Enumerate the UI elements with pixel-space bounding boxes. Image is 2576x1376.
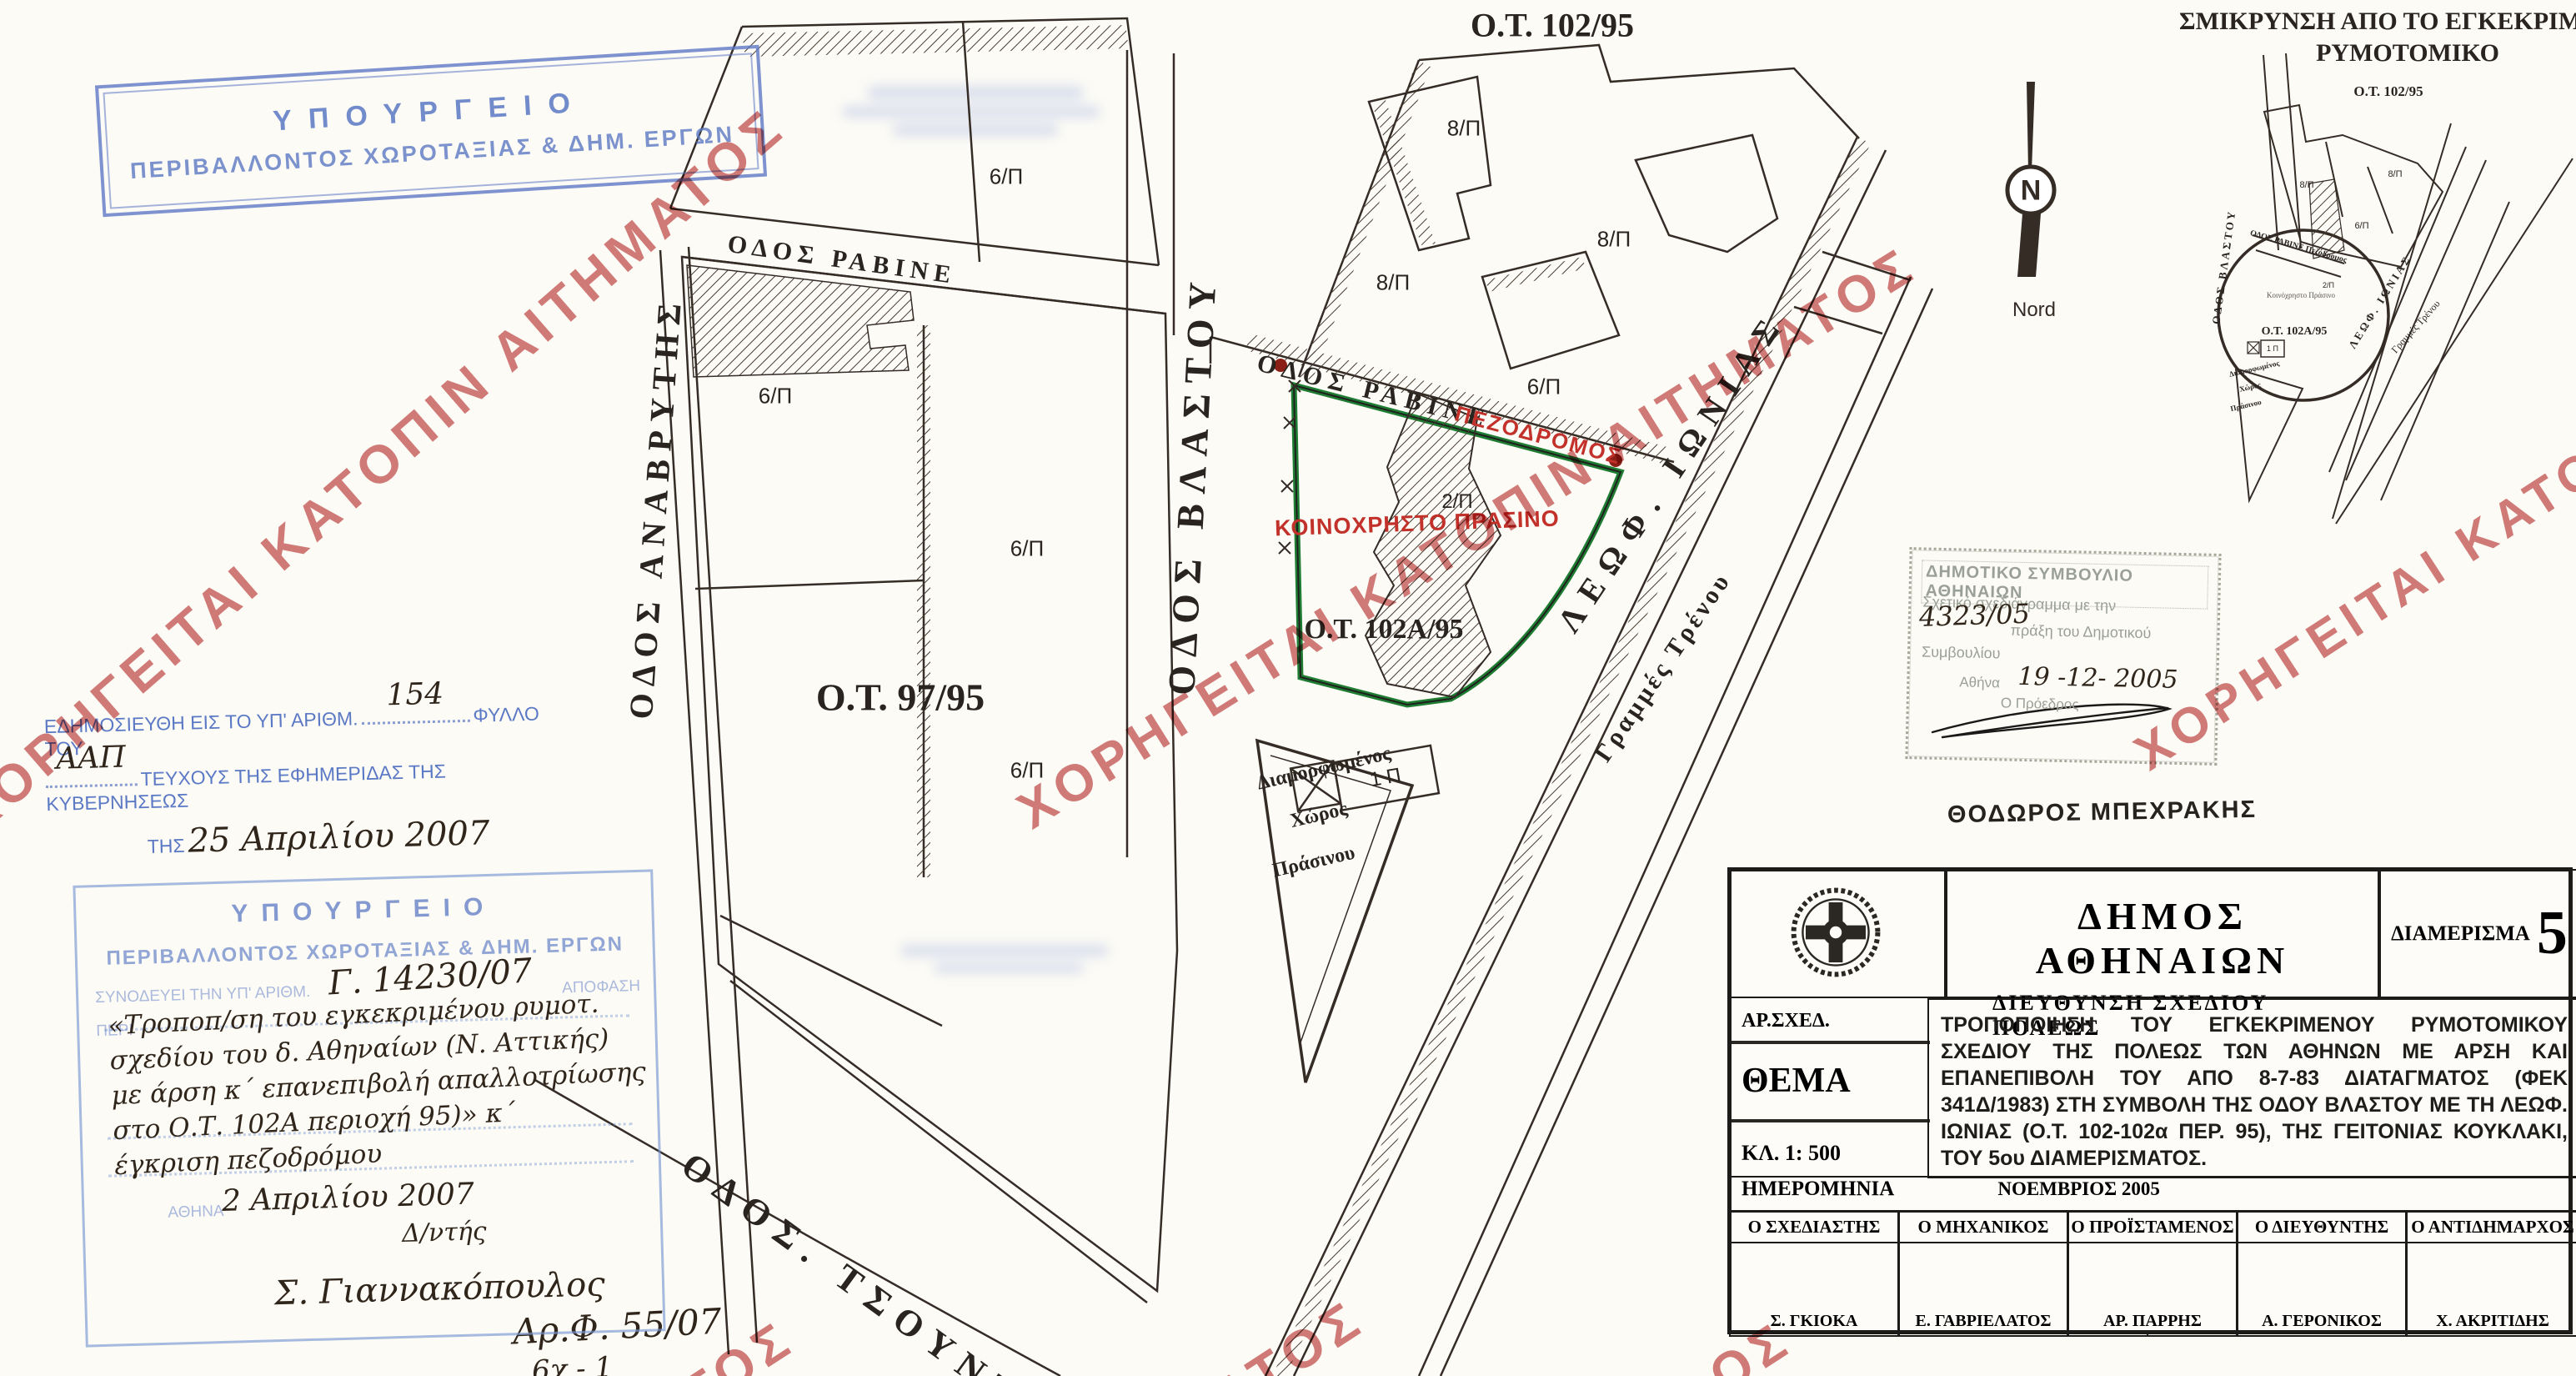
- date-label: ΗΜΕΡΟΜΗΝΙΑ: [1742, 1178, 1894, 1200]
- minimap-zone-2p: 2/Π: [2323, 281, 2334, 289]
- signer-role: Ο ΣΧΕΔΙΑΣΤΗΣ: [1731, 1212, 1897, 1243]
- signer-name: Ε. ΓΑΒΡΙΕΛΑΤΟΣ: [1900, 1312, 2067, 1331]
- council-line3: πράξη του Δημοτικού: [2010, 622, 2151, 643]
- surveyor-name: ΘΟΔΩΡΟΣ ΜΠΕΧΡΑΚΗΣ: [1947, 796, 2258, 829]
- north-arrow-label: Nord: [2012, 299, 2056, 322]
- publication-line3-label: ΤΗΣ: [147, 835, 185, 857]
- decision-role-handwritten: Δ/ντής: [402, 1217, 487, 1248]
- council-date-handwritten: 19 -12- 2005: [2017, 662, 2178, 695]
- scale-value: ΚΛ. 1: 500: [1742, 1141, 1930, 1166]
- ministry-decision-stamp: ΥΠΟΥΡΓΕΙΟ ΠΕΡΙΒΑΛΛΟΝΤΟΣ ΧΩΡΟΤΑΞΙΑΣ & ΔΗΜ…: [73, 869, 665, 1347]
- drawing-no-label: ΑΡ.ΣΧΕΔ.: [1742, 1010, 1930, 1032]
- divider: [1732, 1041, 1930, 1044]
- zone-label-6p: 6/Π: [1527, 374, 1561, 400]
- file-ref-2: 6χ - 1: [531, 1350, 614, 1376]
- zone-label-6p: 6/Π: [990, 164, 1023, 190]
- signer-cell: Ο ΣΧΕΔΙΑΣΤΗΣ Σ. ΓΚΙΟΚΑ: [1729, 1210, 1899, 1337]
- date-value: ΝΟΕΜΒΡΙΟΣ 2005: [1997, 1178, 2160, 1199]
- title-block-org-cell: ΔΗΜΟΣ ΑΘΗΝΑΙΩΝ ΔΙΕΥΘΥΝΣΗ ΣΧΕΔΙΟΥ ΠΟΛΕΩΣ: [1946, 869, 2379, 998]
- title-block: ΔΗΜΟΣ ΑΘΗΝΑΙΩΝ ΔΙΕΥΘΥΝΣΗ ΣΧΕΔΙΟΥ ΠΟΛΕΩΣ …: [1727, 867, 2573, 1334]
- decision-header1: ΥΠΟΥΡΓΕΙΟ: [76, 888, 652, 932]
- decision-date-handwritten: 2 Απριλίου 2007: [221, 1178, 474, 1218]
- zone-label-6p: 6/Π: [1010, 536, 1044, 562]
- sheet-number-handwritten: 154: [386, 677, 444, 713]
- title-block-labels-col: ΑΡ.ΣΧΕΔ. ΘΕΜΑ ΚΛ. 1: 500: [1732, 998, 1930, 1178]
- subject-text-cell: ΤΡΟΠΟΠΟΙΗΣΗ ΤΟΥ ΕΓΚΕΚΡΙΜΕΝΟΥ ΡΥΜΟΤΟΜΙΚΟΥ…: [1927, 998, 2576, 1178]
- signer-name: Α. ΓΕΡΟΝΙΚΟΣ: [2238, 1312, 2405, 1331]
- signer-cell: Ο ΔΙΕΥΘΥΝΤΗΣ Α. ΓΕΡΟΝΙΚΟΣ: [2237, 1210, 2407, 1337]
- title-block-district-cell: ΔΙΑΜΕΡΙΣΜΑ 5: [2379, 869, 2576, 998]
- zone-label-8p: 8/Π: [1597, 227, 1631, 253]
- minimap-block-102: Ο.Τ. 102/95: [2353, 83, 2423, 100]
- zone-label-6p: 6/Π: [759, 384, 792, 409]
- council-city: Αθήνα: [1959, 674, 2000, 691]
- decision-signature-name: Σ. Γιαννακόπουλος: [274, 1265, 606, 1313]
- signer-name: ΑΡ. ΠΑΡΡΗΣ: [2069, 1312, 2236, 1331]
- signer-role: Ο ΑΝΤΙΔΗΜΑΡΧΟΣ: [2408, 1212, 2576, 1243]
- signer-cell: Ο ΠΡΟΪΣΤΑΜΕΝΟΣ ΑΡ. ΠΑΡΡΗΣ: [2067, 1210, 2238, 1337]
- block-label-97-95: Ο.Τ. 97/95: [816, 675, 985, 720]
- district-label: ΔΙΑΜΕΡΙΣΜΑ: [2391, 922, 2530, 946]
- decision-city-label: ΑΘΗΝΑ: [168, 1203, 224, 1223]
- minimap-zone-6p: 6/Π: [2354, 221, 2368, 231]
- minimap-title-line1: ΣΜΙΚΡΥΝΣΗ ΑΠΟ ΤΟ ΕΓΚΕΚΡΙΜΕΝΟ: [2179, 8, 2576, 36]
- publication-date-handwritten: 25 Απριλίου 2007: [188, 814, 490, 860]
- minimap-green-label: Κοινόχρηστο Πράσινο: [2267, 291, 2335, 299]
- signer-name: Χ. ΑΚΡΙΤΙΔΗΣ: [2408, 1312, 2576, 1331]
- subject-label: ΘΕΜΑ: [1742, 1061, 1930, 1101]
- zone-label-8p: 8/Π: [1447, 116, 1481, 142]
- minimap-zone-1p: 1 Π: [2267, 344, 2278, 353]
- scanned-urban-plan-page: ΧΟΡΗΓΕΙΤΑΙ ΚΑΤΟΠΙΝ ΑΙΤΗΜΑΤΟΣ ΧΟΡΗΓΕΙΤΑΙ …: [0, 0, 2576, 1376]
- signer-role: Ο ΠΡΟΪΣΤΑΜΕΝΟΣ: [2069, 1212, 2236, 1243]
- divider: [1732, 1119, 1930, 1122]
- block-label-102-95: Ο.Τ. 102/95: [1471, 6, 1634, 45]
- district-number: 5: [2537, 898, 2568, 969]
- date-row: ΗΜΕΡΟΜΗΝΙΑ ΝΟΕΜΒΡΙΟΣ 2005: [1732, 1176, 2576, 1213]
- signer-cell: Ο ΜΗΧΑΝΙΚΟΣ Ε. ΓΑΒΡΙΕΛΑΤΟΣ: [1898, 1210, 2068, 1337]
- minimap-title-line2: ΡΥΜΟΤΟΜΙΚΟ: [2316, 39, 2499, 68]
- municipality-emblem-icon: [1786, 882, 1886, 982]
- minimap-zone-8p: 8/Π: [2299, 180, 2313, 190]
- minimap-zone-8p: 8/Π: [2388, 169, 2402, 179]
- subject-text: ΤΡΟΠΟΠΟΙΗΣΗ ΤΟΥ ΕΓΚΕΚΡΙΜΕΝΟΥ ΡΥΜΟΤΟΜΙΚΟΥ…: [1929, 1000, 2576, 1172]
- title-block-logo-cell: [1729, 869, 1946, 998]
- dotted-leader: 154: [361, 705, 470, 725]
- zone-label-8p: 8/Π: [1376, 270, 1410, 296]
- municipality-name: ΔΗΜΟΣ ΑΘΗΝΑΙΩΝ: [1947, 894, 2378, 982]
- signer-role: Ο ΔΙΕΥΘΥΝΤΗΣ: [2238, 1212, 2405, 1243]
- council-president-label: Ο Πρόεδρος: [2001, 695, 2079, 713]
- council-line4: Συμβουλίου: [1922, 643, 2001, 662]
- minimap-block-102a: Ο.Τ. 102Α/95: [2262, 325, 2328, 339]
- decision-body-handwritten: «Τροποπ/ση του εγκεκριμένου ρυμοτ. σχεδί…: [108, 984, 650, 1183]
- signer-role: Ο ΜΗΧΑΝΙΚΟΣ: [1900, 1212, 2067, 1243]
- north-arrow-letter: N: [2021, 175, 2042, 208]
- signer-cell: Ο ΑΝΤΙΔΗΜΑΡΧΟΣ Χ. ΑΚΡΙΤΙΔΗΣ: [2406, 1210, 2576, 1337]
